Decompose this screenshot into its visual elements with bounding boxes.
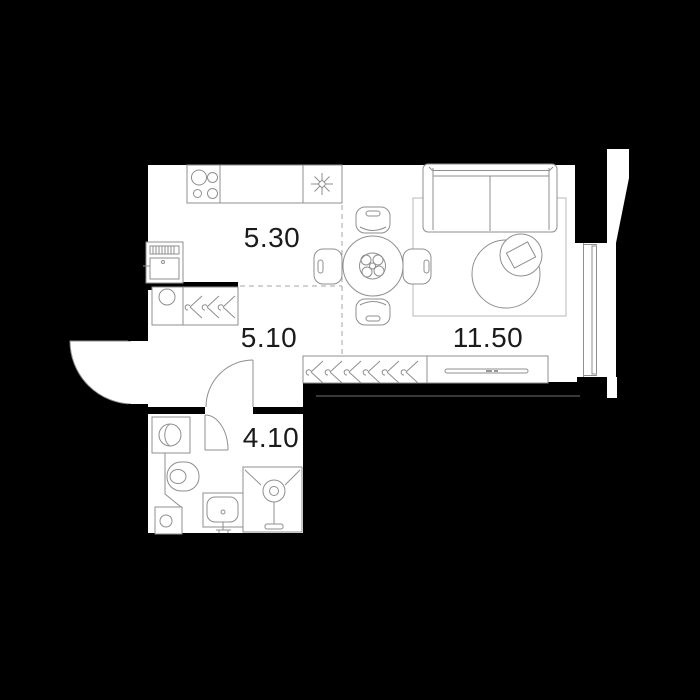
drain-box-icon (155, 507, 182, 534)
hallway-area-label: 5.10 (241, 322, 298, 353)
chair-right-icon (403, 249, 431, 284)
bathroom-area-label: 4.10 (243, 422, 300, 453)
chair-bottom-icon (356, 299, 390, 325)
wardrobe-icon (303, 356, 427, 383)
bathroom-right-wall (303, 398, 320, 550)
bathroom-bottom-wall (128, 533, 320, 550)
kitchen-area-label: 5.30 (244, 222, 301, 253)
top-wall (128, 149, 607, 165)
left-wall-lower (128, 404, 148, 550)
chair-left-icon (314, 249, 342, 284)
floorplan-stage: 5.30 5.10 11.50 4.10 (0, 0, 700, 700)
floorplan-canvas: 5.30 5.10 11.50 4.10 (0, 0, 700, 700)
chair-top-icon (356, 207, 390, 233)
right-pier-wall (575, 149, 607, 243)
living-room-area-label: 11.50 (453, 322, 524, 353)
bathroom-top-wall-left (148, 407, 205, 414)
washing-machine-icon (152, 417, 190, 453)
hall-wardrobe-icon (183, 287, 238, 325)
left-wall-upper (128, 149, 148, 341)
tv-stand-icon (427, 356, 548, 383)
washbasin-icon (203, 493, 243, 533)
sofa-icon (423, 164, 557, 232)
sill-notch (607, 377, 617, 398)
toilet-icon (167, 462, 199, 491)
hall-cabinet-icon (152, 287, 183, 325)
fridge-icon (143, 242, 183, 283)
dining-table-icon (343, 236, 403, 296)
